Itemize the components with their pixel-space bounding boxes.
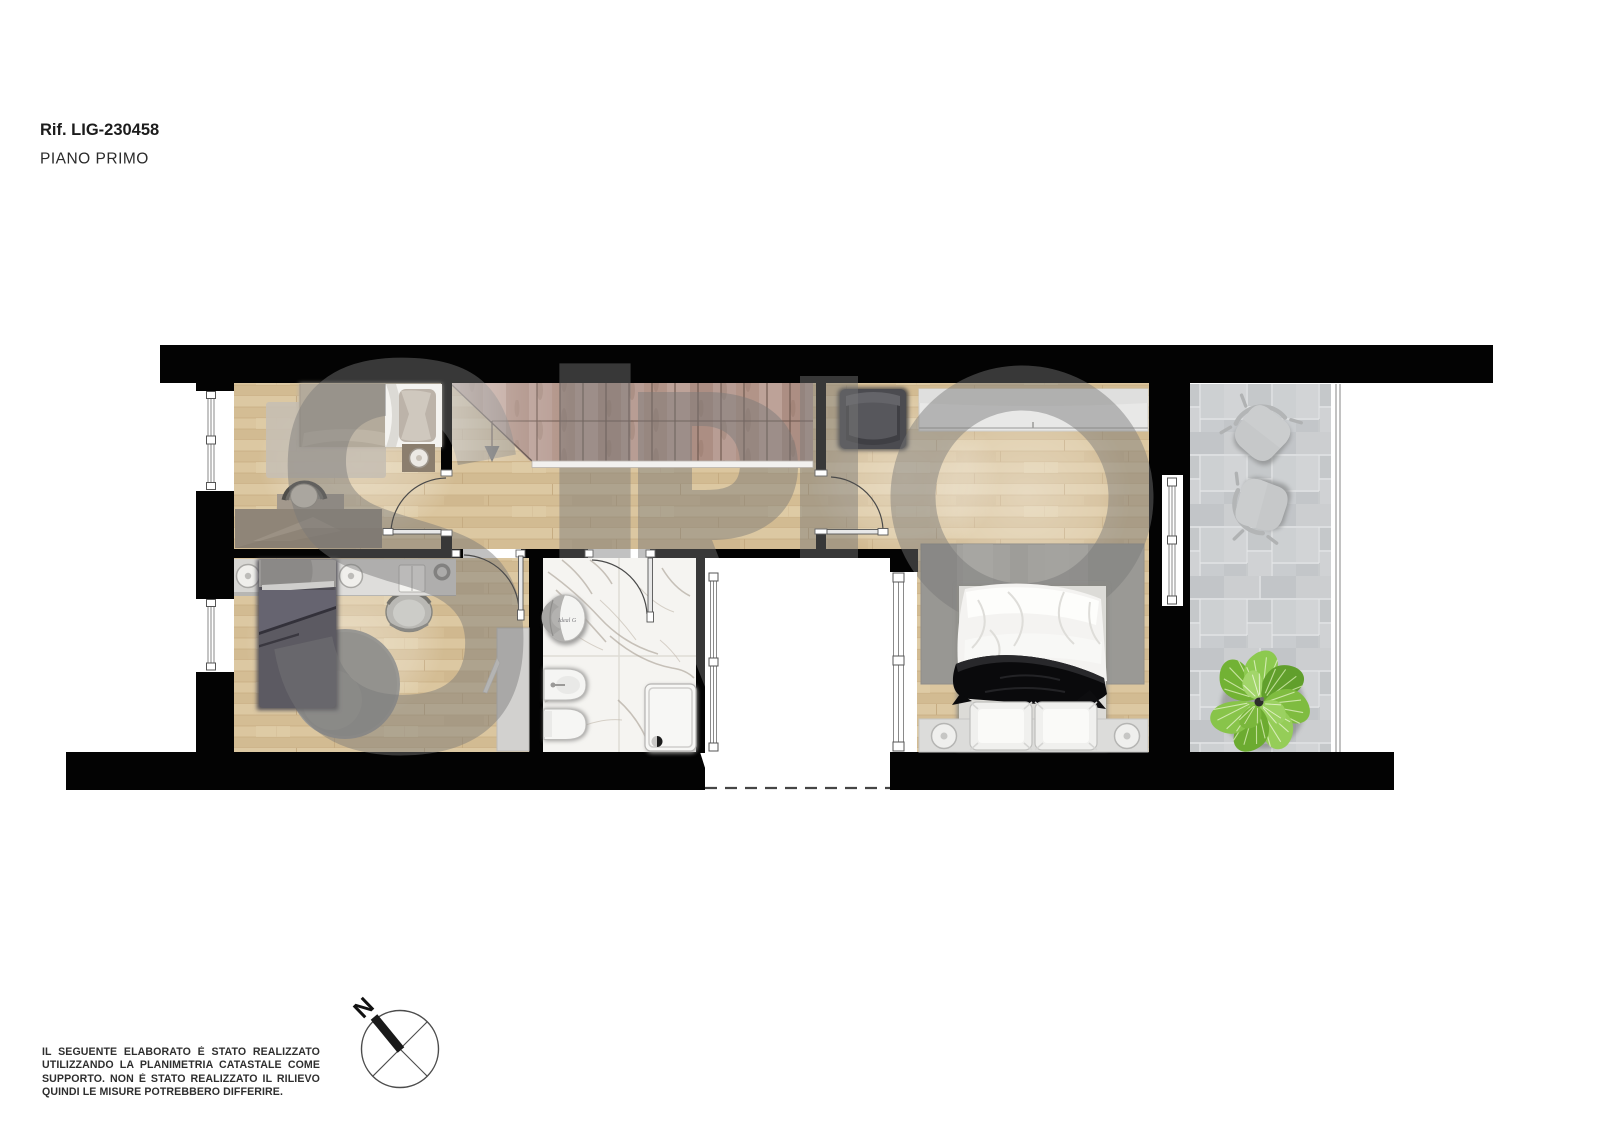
svg-text:Ideal G: Ideal G [557,618,577,624]
svg-text:PIANO PRIMO: PIANO PRIMO [40,151,149,168]
svg-text:S: S [262,241,539,870]
svg-text:Rif. LIG-230458: Rif. LIG-230458 [40,121,159,139]
